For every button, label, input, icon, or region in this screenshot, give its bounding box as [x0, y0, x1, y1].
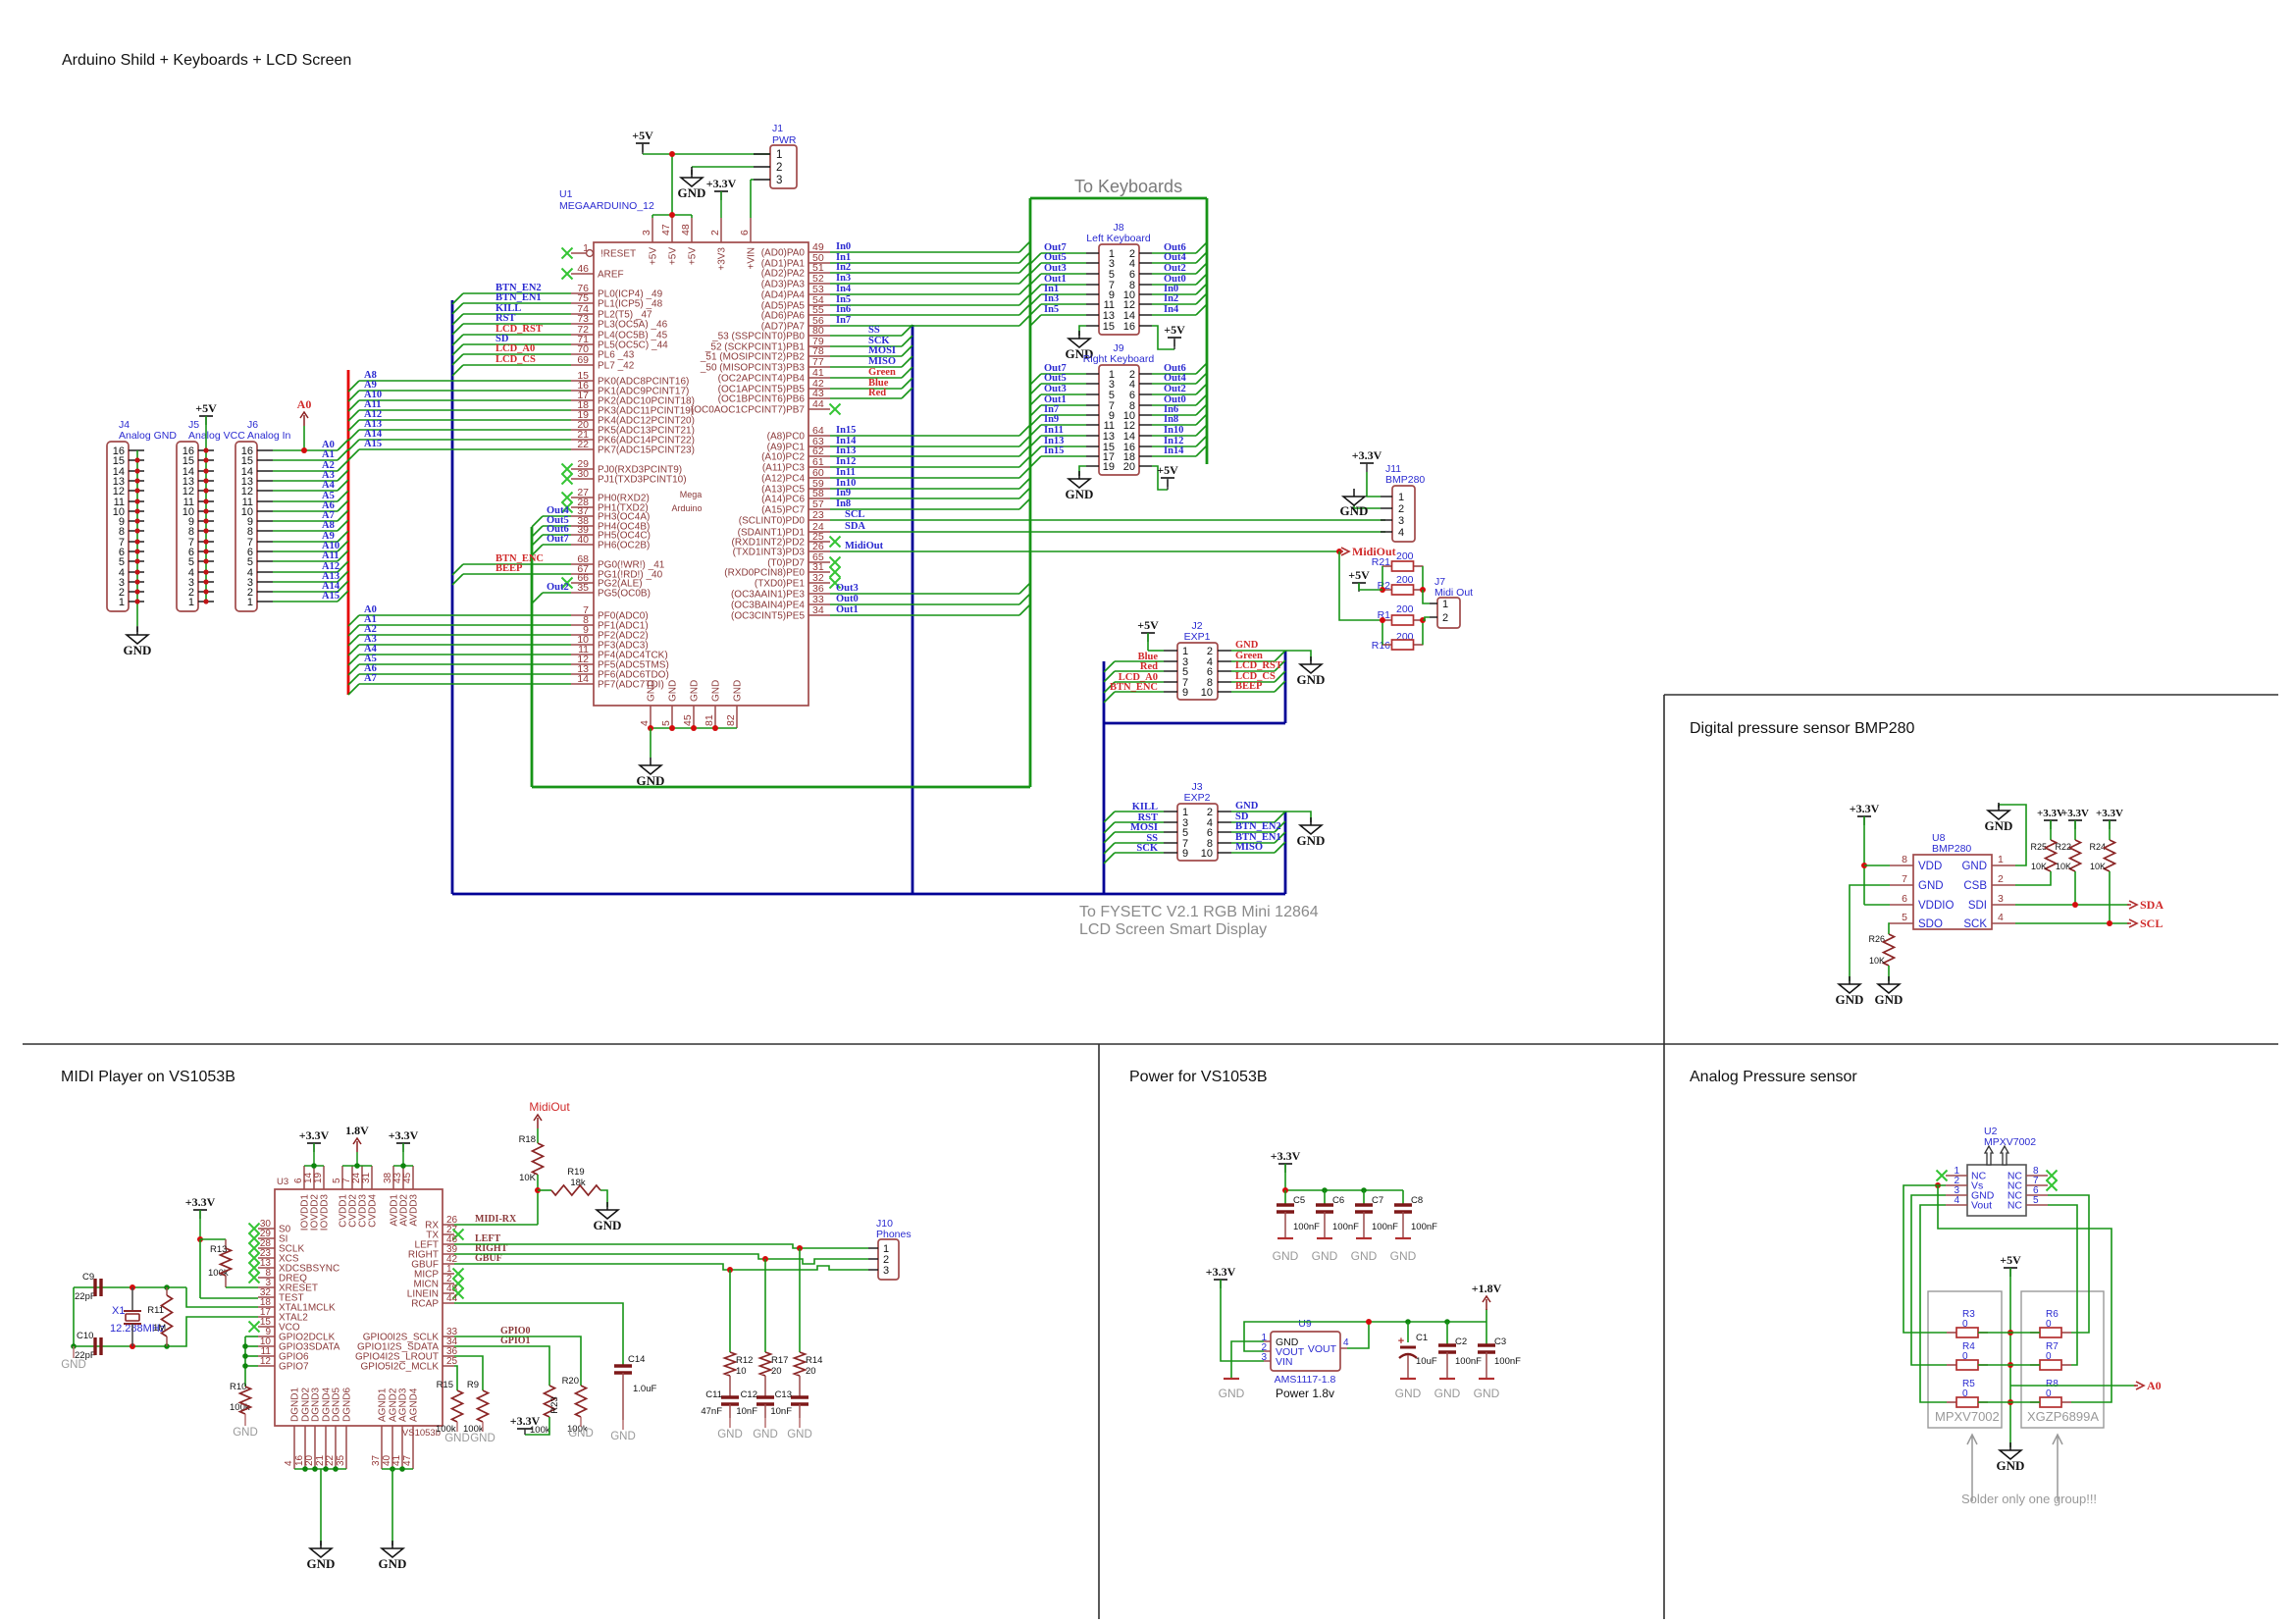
svg-text:Solder only one group!!!: Solder only one group!!! — [1961, 1492, 2097, 1506]
svg-text:CSB: CSB — [1963, 880, 1987, 892]
svg-text:+5V: +5V — [668, 247, 679, 265]
svg-text:100nF: 100nF — [1455, 1356, 1482, 1367]
svg-text:R25: R25 — [2030, 842, 2047, 852]
svg-text:GND: GND — [1340, 503, 1369, 518]
svg-text:+3.3V: +3.3V — [1352, 448, 1382, 462]
svg-text:PL3(OC5A) _46: PL3(OC5A) _46 — [598, 320, 668, 331]
svg-text:MISO: MISO — [1235, 842, 1263, 853]
svg-text:MIDI-RX: MIDI-RX — [475, 1214, 517, 1225]
svg-text:6: 6 — [1902, 893, 1907, 905]
svg-text:Out5: Out5 — [1044, 252, 1067, 263]
svg-text:Out3: Out3 — [836, 583, 859, 594]
svg-text:10K: 10K — [519, 1173, 537, 1183]
svg-text:14: 14 — [577, 673, 589, 685]
svg-text:In10: In10 — [1164, 425, 1183, 436]
svg-text:GND: GND — [1434, 1387, 1461, 1400]
svg-text:(AD6)PA6: (AD6)PA6 — [761, 311, 806, 322]
svg-text:AREF: AREF — [598, 270, 624, 281]
svg-text:100nF: 100nF — [1332, 1222, 1359, 1232]
svg-text:AGND4: AGND4 — [409, 1388, 420, 1422]
svg-text:A15: A15 — [322, 591, 339, 602]
svg-text:GND: GND — [610, 1431, 636, 1442]
svg-text:C3: C3 — [1494, 1336, 1506, 1347]
svg-text:1: 1 — [119, 597, 125, 608]
svg-text:MOSI: MOSI — [1130, 822, 1158, 833]
svg-text:Out2: Out2 — [547, 582, 569, 593]
svg-text:4: 4 — [639, 720, 651, 726]
svg-text:In9: In9 — [1044, 414, 1059, 425]
svg-text:PL7 _42: PL7 _42 — [598, 361, 635, 372]
svg-text:10K: 10K — [2031, 862, 2047, 871]
svg-text:(AD2)PA2: (AD2)PA2 — [761, 269, 806, 280]
svg-text:10K: 10K — [2090, 862, 2106, 871]
svg-text:+1.8V: +1.8V — [1472, 1282, 1502, 1295]
svg-text:30: 30 — [577, 468, 589, 480]
svg-text:45: 45 — [402, 1172, 413, 1183]
svg-text:SDA: SDA — [2140, 898, 2164, 912]
svg-text:In11: In11 — [836, 467, 856, 478]
svg-text:R16: R16 — [1372, 640, 1390, 652]
svg-text:3: 3 — [776, 175, 782, 186]
svg-text:+3.3V: +3.3V — [706, 177, 737, 190]
svg-text:A11: A11 — [322, 550, 339, 561]
svg-text:BTN_EN2: BTN_EN2 — [1235, 821, 1281, 832]
svg-text:LCD_A0: LCD_A0 — [495, 343, 535, 354]
svg-text:20: 20 — [304, 1454, 315, 1466]
svg-text:(AD3)PA3: (AD3)PA3 — [761, 280, 806, 290]
svg-text:2: 2 — [1442, 612, 1448, 624]
svg-text:35: 35 — [577, 582, 589, 594]
svg-text:(A8)PC0: (A8)PC0 — [767, 432, 806, 443]
svg-text:LCD_CS: LCD_CS — [495, 354, 536, 365]
svg-text:16: 16 — [1123, 321, 1135, 333]
svg-text:(TXD0)PE1: (TXD0)PE1 — [755, 579, 806, 590]
svg-text:GND: GND — [690, 680, 701, 702]
svg-text:(OC3AAIN1)PE3: (OC3AAIN1)PE3 — [731, 590, 805, 601]
svg-text:Out2: Out2 — [1164, 384, 1186, 394]
svg-text:+: + — [1398, 1336, 1404, 1347]
svg-text:BTN_ENC: BTN_ENC — [1110, 682, 1158, 693]
svg-text:3: 3 — [1998, 893, 2004, 905]
svg-text:C6: C6 — [1332, 1195, 1344, 1206]
svg-text:MOSI: MOSI — [868, 345, 896, 356]
svg-text:GND: GND — [1297, 672, 1326, 687]
svg-text:_50 (MISOPCINT3)PB3: _50 (MISOPCINT3)PB3 — [700, 363, 806, 374]
svg-text:+3.3V: +3.3V — [2037, 808, 2064, 819]
svg-text:2: 2 — [776, 162, 782, 174]
svg-text:A0: A0 — [2147, 1379, 2162, 1392]
svg-text:(A15)PC7: (A15)PC7 — [761, 505, 805, 516]
svg-text:+5V: +5V — [1137, 618, 1159, 632]
svg-text:XGZP6899A: XGZP6899A — [2027, 1409, 2099, 1424]
svg-text:22: 22 — [577, 439, 589, 450]
svg-text:1: 1 — [247, 597, 253, 608]
svg-text:U9: U9 — [1298, 1318, 1312, 1330]
svg-text:GND: GND — [1474, 1387, 1500, 1400]
svg-text:(A11)PC3: (A11)PC3 — [762, 463, 806, 474]
svg-text:2: 2 — [1998, 873, 2004, 885]
svg-text:GND: GND — [787, 1429, 812, 1441]
svg-text:R26: R26 — [1868, 934, 1885, 944]
svg-text:(A10)PC2: (A10)PC2 — [761, 452, 805, 463]
svg-text:U3: U3 — [277, 1177, 288, 1187]
svg-text:Left Keyboard: Left Keyboard — [1086, 233, 1151, 244]
svg-text:C7: C7 — [1372, 1195, 1383, 1206]
svg-text:45: 45 — [682, 714, 694, 726]
svg-text:(OC2APCINT4)PB4: (OC2APCINT4)PB4 — [718, 374, 806, 385]
svg-text:10: 10 — [1201, 848, 1213, 860]
svg-text:LCD Screen Smart Display: LCD Screen Smart Display — [1079, 921, 1267, 938]
svg-text:MPXV7002: MPXV7002 — [1935, 1409, 2000, 1424]
svg-text:_53 (SSPCINT0)PB0: _53 (SSPCINT0)PB0 — [711, 332, 805, 342]
svg-text:47nF: 47nF — [701, 1406, 722, 1417]
svg-text:3: 3 — [1261, 1352, 1267, 1363]
svg-text:9: 9 — [1182, 687, 1188, 699]
svg-text:100nF: 100nF — [1494, 1356, 1521, 1367]
svg-text:100nF: 100nF — [1293, 1222, 1320, 1232]
svg-text:BTN_EN1: BTN_EN1 — [495, 292, 542, 303]
svg-text:SDI: SDI — [1968, 900, 1987, 912]
svg-text:DGND1: DGND1 — [290, 1388, 301, 1422]
svg-text:MidiOut: MidiOut — [529, 1100, 570, 1114]
svg-text:Red: Red — [868, 388, 886, 398]
svg-text:GND: GND — [1235, 640, 1259, 651]
svg-text:1: 1 — [1998, 854, 2004, 865]
svg-text:1: 1 — [1442, 599, 1448, 610]
svg-text:PL1(ICP5) _48: PL1(ICP5) _48 — [598, 299, 663, 310]
svg-text:Out1: Out1 — [836, 604, 859, 615]
svg-text:VOUT: VOUT — [1308, 1343, 1337, 1355]
svg-text:In11: In11 — [1044, 425, 1064, 436]
svg-text:BMP280: BMP280 — [1385, 474, 1425, 486]
svg-text:!RESET: !RESET — [600, 249, 636, 260]
svg-text:In2: In2 — [1164, 293, 1178, 304]
svg-text:GND: GND — [1297, 833, 1326, 848]
svg-text:1: 1 — [776, 149, 782, 161]
svg-text:3: 3 — [1398, 515, 1404, 527]
svg-text:2: 2 — [1398, 503, 1404, 515]
svg-text:81: 81 — [704, 714, 715, 726]
svg-text:PJ1(TXD3PCINT10): PJ1(TXD3PCINT10) — [598, 475, 687, 486]
svg-text:GND: GND — [124, 643, 152, 657]
svg-text:BEEP: BEEP — [1235, 681, 1263, 692]
svg-text:31: 31 — [361, 1172, 372, 1183]
svg-text:+3.3V: +3.3V — [2061, 808, 2089, 819]
svg-text:GND: GND — [733, 680, 744, 702]
svg-text:2: 2 — [709, 230, 721, 236]
svg-text:C13: C13 — [775, 1389, 792, 1400]
svg-text:44: 44 — [812, 398, 824, 410]
svg-text:5: 5 — [1902, 912, 1907, 923]
svg-text:R20: R20 — [562, 1376, 579, 1387]
svg-text:In8: In8 — [836, 498, 851, 509]
svg-text:GND: GND — [1066, 487, 1094, 501]
svg-text:Digital pressure sensor BMP280: Digital pressure sensor BMP280 — [1690, 720, 1915, 737]
svg-text:+3.3V: +3.3V — [2096, 808, 2123, 819]
svg-text:C10: C10 — [77, 1331, 93, 1341]
svg-text:GND: GND — [1395, 1387, 1422, 1400]
svg-text:20: 20 — [806, 1366, 816, 1377]
svg-text:R24: R24 — [2089, 842, 2106, 852]
svg-text:R14: R14 — [806, 1355, 822, 1366]
svg-text:GND: GND — [1219, 1387, 1245, 1400]
svg-text:R23: R23 — [549, 1396, 560, 1413]
svg-text:R9: R9 — [467, 1380, 479, 1390]
svg-text:GND: GND — [711, 680, 722, 702]
svg-text:R15: R15 — [437, 1380, 453, 1390]
svg-text:41: 41 — [391, 1454, 402, 1466]
svg-text:(RXD0PCIN8)PE0: (RXD0PCIN8)PE0 — [724, 568, 805, 579]
svg-text:R17: R17 — [771, 1355, 788, 1366]
svg-text:5: 5 — [2033, 1195, 2039, 1206]
svg-text:(A12)PC4: (A12)PC4 — [761, 474, 805, 485]
svg-text:Right Keyboard: Right Keyboard — [1083, 353, 1155, 365]
svg-text:Analog GND: Analog GND — [119, 430, 177, 442]
svg-text:GND: GND — [1273, 1249, 1299, 1263]
svg-text:NC: NC — [2007, 1200, 2023, 1212]
svg-text:10: 10 — [736, 1366, 747, 1377]
svg-text:Mega: Mega — [680, 490, 703, 499]
svg-text:+5V: +5V — [1348, 568, 1370, 582]
svg-text:GND: GND — [1312, 1249, 1338, 1263]
svg-text:1.0uF: 1.0uF — [633, 1384, 656, 1394]
svg-text:(TXD1INT3)PD3: (TXD1INT3)PD3 — [733, 548, 806, 558]
svg-text:SCK: SCK — [1136, 843, 1158, 854]
svg-text:GND: GND — [568, 1428, 594, 1440]
svg-text:C2: C2 — [1455, 1336, 1467, 1347]
svg-text:In13: In13 — [836, 445, 856, 456]
svg-text:(AD4)PA4: (AD4)PA4 — [761, 290, 806, 301]
svg-text:Out5: Out5 — [1044, 373, 1067, 384]
svg-text:AGND3: AGND3 — [398, 1388, 409, 1422]
svg-text:GND: GND — [379, 1556, 407, 1571]
svg-text:4: 4 — [1343, 1337, 1349, 1348]
svg-text:_51 (MOSIPCINT2)PB2: _51 (MOSIPCINT2)PB2 — [700, 352, 806, 363]
svg-text:10K: 10K — [2056, 862, 2071, 871]
svg-text:Power for VS1053B: Power for VS1053B — [1129, 1069, 1268, 1085]
svg-text:MidiOut: MidiOut — [845, 541, 884, 551]
svg-text:R22: R22 — [2055, 842, 2071, 852]
svg-text:GPIO5I2C_MCLK: GPIO5I2C_MCLK — [361, 1362, 440, 1373]
svg-text:Out7: Out7 — [547, 534, 569, 545]
svg-text:R19: R19 — [567, 1167, 584, 1178]
svg-text:100nF: 100nF — [1372, 1222, 1398, 1232]
svg-text:6: 6 — [739, 230, 751, 236]
svg-text:+3.3V: +3.3V — [299, 1128, 330, 1142]
svg-text:+3.3V: +3.3V — [1206, 1265, 1236, 1279]
svg-text:PL6 _43: PL6 _43 — [598, 350, 635, 361]
svg-text:RST: RST — [495, 313, 515, 324]
svg-text:In7: In7 — [836, 315, 851, 326]
svg-text:In15: In15 — [1044, 445, 1064, 456]
svg-text:GND: GND — [61, 1359, 86, 1371]
svg-text:GND: GND — [1875, 992, 1903, 1007]
svg-text:10: 10 — [1201, 687, 1213, 699]
svg-text:69: 69 — [577, 354, 589, 366]
svg-text:DGND6: DGND6 — [342, 1388, 353, 1422]
svg-text:VDD: VDD — [1918, 861, 1942, 872]
svg-text:10nF: 10nF — [736, 1406, 757, 1417]
svg-text:1: 1 — [1398, 492, 1404, 503]
svg-text:KILL: KILL — [1132, 802, 1158, 812]
svg-text:12: 12 — [260, 1356, 272, 1367]
svg-text:(OC3BAIN4)PE4: (OC3BAIN4)PE4 — [731, 601, 805, 611]
svg-text:19: 19 — [1103, 461, 1115, 473]
svg-text:MIDI Player on VS1053B: MIDI Player on VS1053B — [61, 1069, 235, 1085]
svg-text:GND: GND — [1961, 861, 1987, 872]
svg-text:MEGAARDUINO_12: MEGAARDUINO_12 — [559, 200, 654, 212]
svg-text:BMP280: BMP280 — [1932, 843, 1971, 855]
svg-text:C9: C9 — [82, 1272, 94, 1283]
svg-text:Red: Red — [1140, 661, 1158, 672]
svg-text:10K: 10K — [1869, 956, 1885, 966]
svg-text:In8: In8 — [1164, 414, 1178, 425]
svg-text:15: 15 — [1103, 321, 1115, 333]
svg-text:20: 20 — [1123, 461, 1135, 473]
svg-text:A7: A7 — [364, 673, 377, 684]
svg-text:1: 1 — [188, 597, 194, 608]
svg-text:Green: Green — [868, 367, 896, 378]
svg-text:R11: R11 — [147, 1305, 164, 1316]
svg-text:A1: A1 — [322, 449, 335, 460]
svg-text:R12: R12 — [736, 1355, 753, 1366]
svg-text:22: 22 — [325, 1454, 336, 1466]
svg-text:AGND1: AGND1 — [378, 1388, 389, 1422]
svg-text:10uF: 10uF — [1416, 1356, 1437, 1367]
svg-text:+VIN: +VIN — [747, 247, 757, 270]
svg-text:(SCLINT0)PD0: (SCLINT0)PD0 — [739, 516, 806, 527]
svg-text:GND: GND — [594, 1218, 622, 1232]
svg-text:Out4: Out4 — [1164, 373, 1187, 384]
svg-text:5: 5 — [660, 720, 672, 726]
svg-text:Analog Pressure sensor: Analog Pressure sensor — [1690, 1069, 1857, 1085]
svg-text:Out4: Out4 — [1164, 252, 1187, 263]
svg-text:C8: C8 — [1411, 1195, 1423, 1206]
svg-text:8: 8 — [1902, 854, 1907, 865]
svg-text:Power 1.8v: Power 1.8v — [1276, 1387, 1334, 1400]
svg-text:AVDD3: AVDD3 — [409, 1194, 420, 1227]
svg-text:(OC3CINT5)PE5: (OC3CINT5)PE5 — [731, 611, 805, 622]
svg-text:In2: In2 — [836, 262, 851, 273]
svg-text:40: 40 — [577, 534, 589, 546]
svg-text:To Keyboards: To Keyboards — [1074, 177, 1182, 196]
svg-text:GND: GND — [307, 1556, 336, 1571]
svg-text:C1: C1 — [1416, 1333, 1428, 1343]
svg-text:GND: GND — [1918, 880, 1944, 892]
svg-text:3: 3 — [641, 230, 652, 236]
svg-text:(OC0AOC1CPCINT7)PB7: (OC0AOC1CPCINT7)PB7 — [691, 405, 806, 416]
svg-text:GND: GND — [233, 1427, 258, 1439]
svg-text:A8: A8 — [322, 520, 335, 531]
svg-text:A4: A4 — [322, 480, 336, 491]
svg-text:22pF: 22pF — [75, 1291, 96, 1302]
svg-text:SCL: SCL — [845, 509, 864, 520]
svg-text:A0: A0 — [297, 397, 312, 411]
svg-text:7: 7 — [1902, 873, 1907, 885]
svg-text:In0: In0 — [836, 241, 851, 252]
svg-text:GND: GND — [1836, 992, 1864, 1007]
svg-text:GND: GND — [717, 1429, 743, 1441]
svg-text:R18: R18 — [519, 1134, 536, 1145]
svg-text:VIN: VIN — [1276, 1356, 1293, 1368]
svg-text:In14: In14 — [1164, 445, 1184, 456]
svg-text:GPIO7: GPIO7 — [279, 1362, 309, 1373]
svg-text:82: 82 — [725, 714, 737, 726]
svg-text:Analog In: Analog In — [247, 430, 291, 442]
svg-text:+5V: +5V — [649, 247, 659, 265]
svg-text:+3V3: +3V3 — [717, 247, 728, 271]
svg-text:SS: SS — [868, 325, 880, 336]
svg-text:EXP2: EXP2 — [1184, 792, 1211, 804]
svg-text:37: 37 — [371, 1454, 382, 1466]
svg-text:Vout: Vout — [1971, 1200, 1992, 1212]
svg-text:IOVDD3: IOVDD3 — [320, 1194, 331, 1231]
svg-text:EXP1: EXP1 — [1184, 631, 1211, 643]
svg-text:+3.3V: +3.3V — [185, 1195, 216, 1209]
svg-text:VDDIO: VDDIO — [1918, 900, 1954, 912]
svg-text:DGND3: DGND3 — [311, 1388, 322, 1422]
svg-text:To FYSETC V2.1 RGB Mini 12864: To FYSETC V2.1 RGB Mini 12864 — [1079, 904, 1319, 920]
svg-text:X1: X1 — [112, 1305, 125, 1317]
svg-text:In15: In15 — [836, 425, 856, 436]
svg-text:SDO: SDO — [1918, 918, 1943, 930]
svg-text:Out0: Out0 — [836, 594, 859, 604]
svg-text:Out3: Out3 — [1044, 263, 1067, 274]
svg-text:+5V: +5V — [688, 247, 699, 265]
svg-text:20: 20 — [771, 1366, 782, 1377]
svg-text:+5V: +5V — [195, 401, 217, 415]
svg-text:4: 4 — [1954, 1195, 1959, 1206]
svg-text:4: 4 — [1398, 527, 1404, 539]
svg-text:GND: GND — [470, 1433, 495, 1444]
svg-text:SCL: SCL — [2140, 917, 2163, 930]
svg-text:4: 4 — [284, 1460, 294, 1466]
svg-text:Arduino: Arduino — [671, 503, 702, 513]
svg-text:100nF: 100nF — [1411, 1222, 1437, 1232]
svg-text:DGND5: DGND5 — [332, 1388, 342, 1422]
svg-text:C14: C14 — [628, 1354, 645, 1365]
svg-text:Out3: Out3 — [1044, 384, 1067, 394]
svg-text:LCD_RST: LCD_RST — [1235, 660, 1282, 671]
svg-text:47: 47 — [402, 1454, 413, 1466]
svg-text:RCAP: RCAP — [411, 1299, 439, 1310]
svg-text:MPXV7002: MPXV7002 — [1984, 1136, 2036, 1148]
svg-text:SCK: SCK — [1963, 918, 1987, 930]
svg-text:SDA: SDA — [845, 521, 865, 532]
svg-text:(OC1BPCINT6)PB6: (OC1BPCINT6)PB6 — [718, 394, 806, 405]
svg-text:In4: In4 — [836, 284, 852, 294]
svg-text:GND: GND — [1997, 1458, 2025, 1473]
svg-text:+5V: +5V — [2000, 1253, 2021, 1267]
svg-text:47: 47 — [660, 224, 672, 236]
svg-text:PH6(OC2B): PH6(OC2B) — [598, 541, 650, 551]
svg-text:In3: In3 — [836, 273, 851, 284]
svg-text:9: 9 — [1182, 848, 1188, 860]
svg-text:MISO: MISO — [868, 356, 896, 367]
svg-text:+3.3V: +3.3V — [1271, 1149, 1301, 1163]
svg-text:GND: GND — [1390, 1249, 1417, 1263]
svg-text:In4: In4 — [1164, 304, 1179, 315]
svg-text:+3.3V: +3.3V — [389, 1128, 419, 1142]
svg-text:A15: A15 — [364, 439, 382, 449]
svg-text:34: 34 — [812, 604, 824, 616]
svg-text:U1: U1 — [559, 188, 573, 200]
svg-text:AMS1117-1.8: AMS1117-1.8 — [1275, 1374, 1336, 1386]
svg-text:In3: In3 — [1044, 293, 1059, 304]
svg-text:GND: GND — [668, 680, 679, 702]
svg-text:48: 48 — [680, 224, 692, 236]
svg-text:In12: In12 — [836, 456, 856, 467]
